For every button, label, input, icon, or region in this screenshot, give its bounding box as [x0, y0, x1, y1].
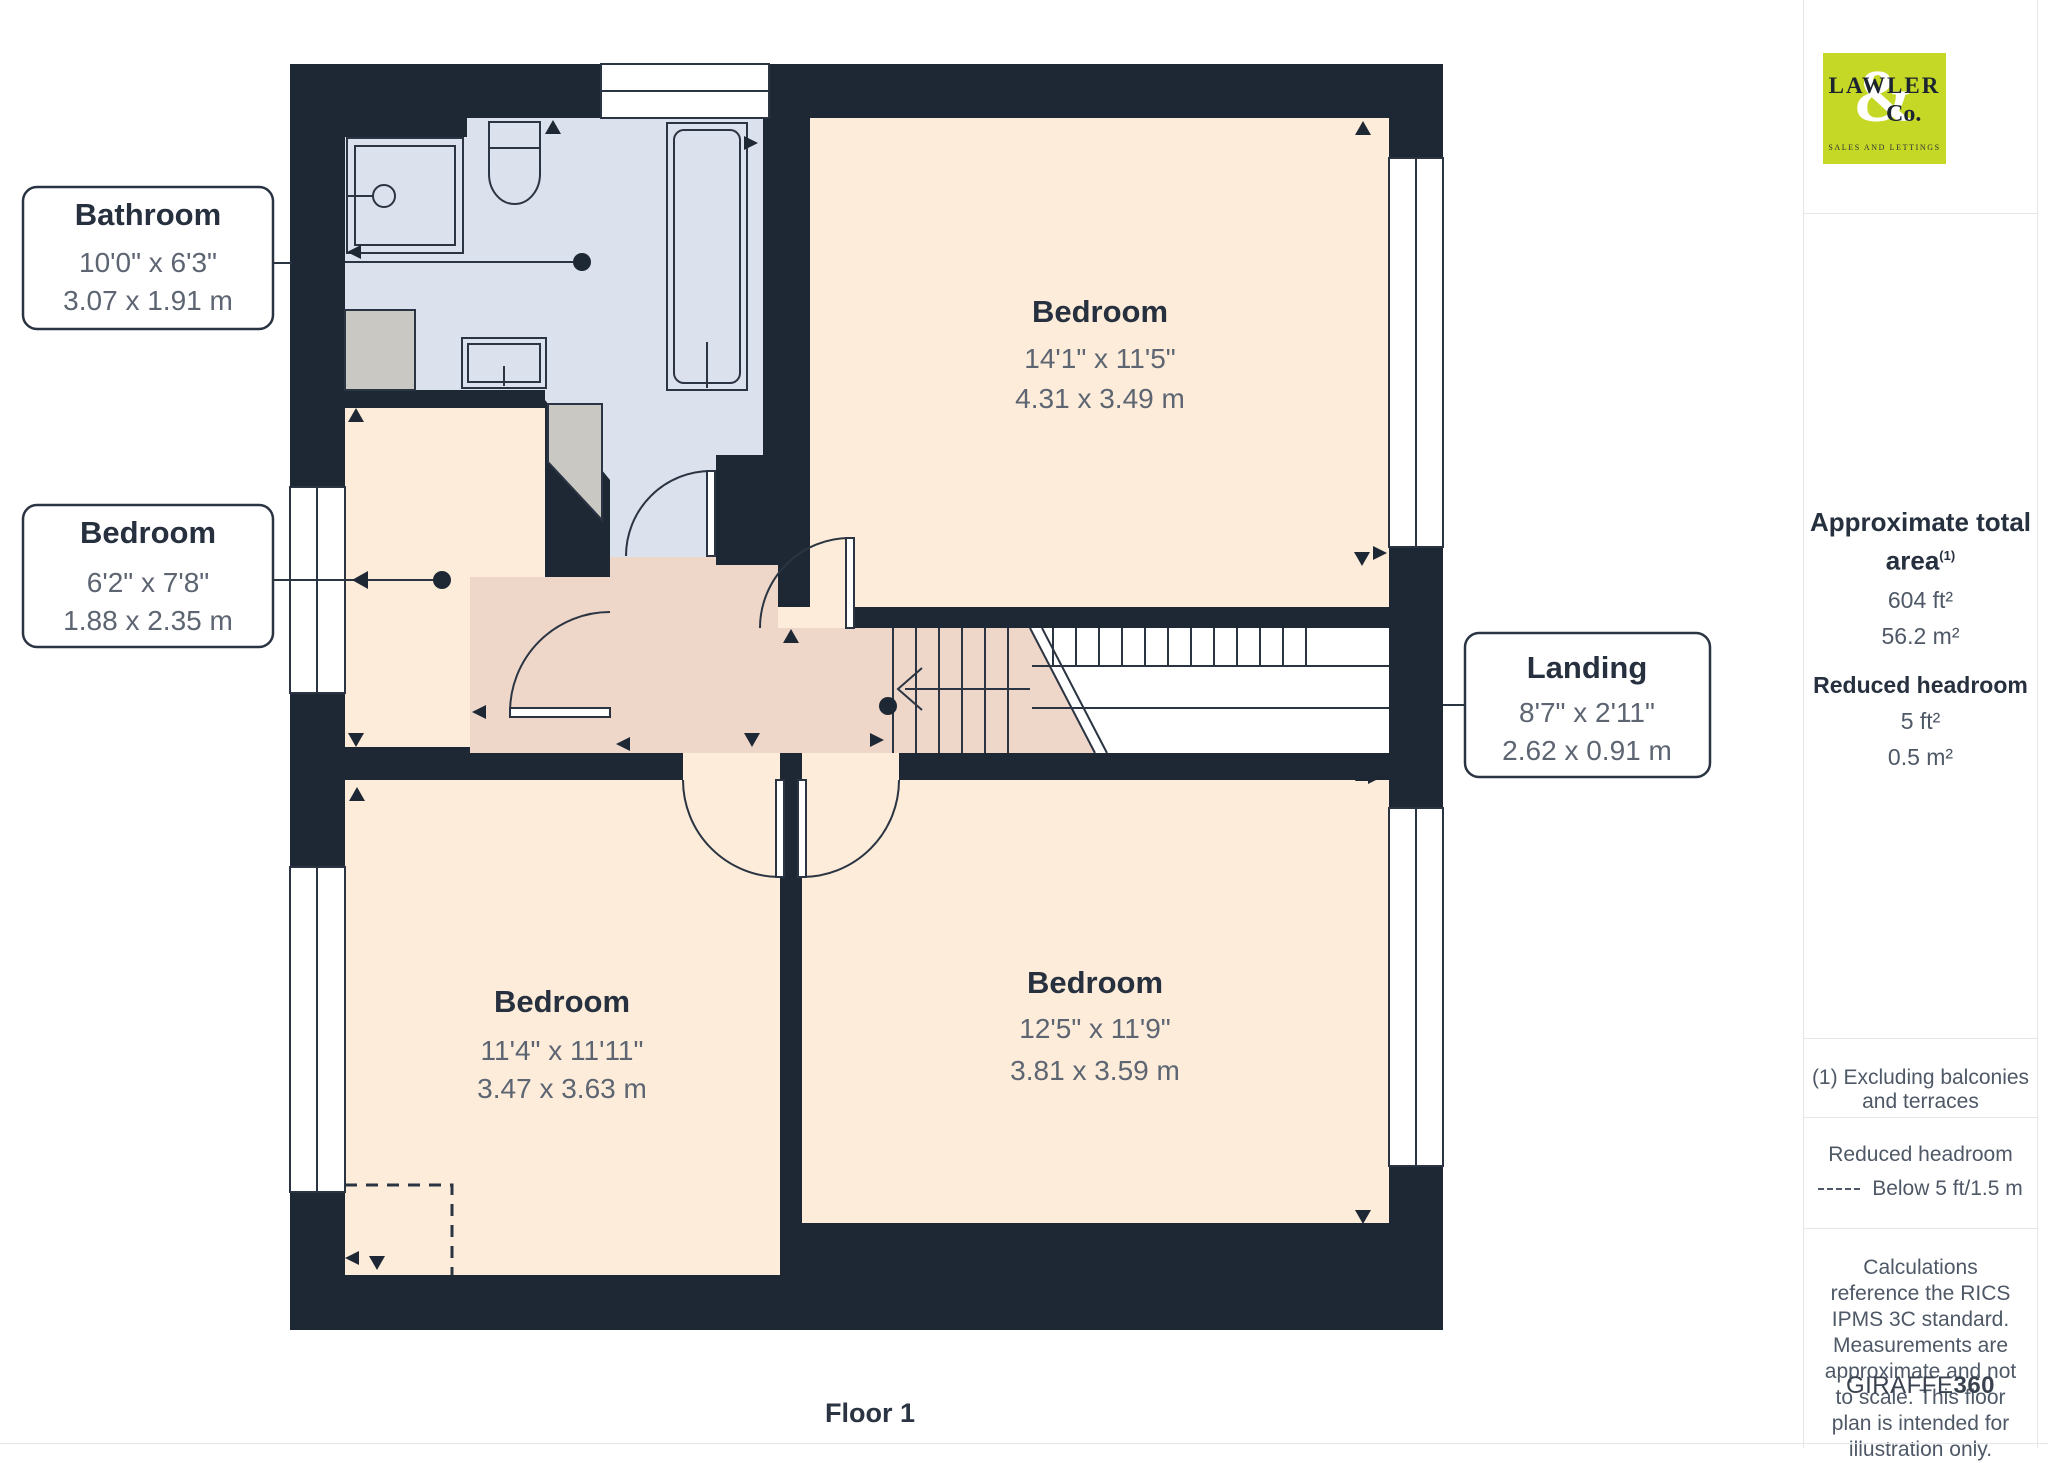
- footnote-marker: (1): [1939, 548, 1955, 563]
- svg-text:8'7" x 2'11": 8'7" x 2'11": [1519, 697, 1655, 728]
- legend-entry: Below 5 ft/1.5 m: [1804, 1177, 2037, 1201]
- svg-text:14'1" x 11'5": 14'1" x 11'5": [1024, 343, 1175, 374]
- window-left-bedroom-small: [290, 487, 345, 693]
- label-bedroom-bottom-left: Bedroom 11'4" x 11'11" 3.47 x 3.63 m: [477, 984, 647, 1104]
- svg-text:11'4" x 11'11": 11'4" x 11'11": [481, 1035, 644, 1066]
- legend: Reduced headroom Below 5 ft/1.5 m: [1804, 1117, 2037, 1201]
- giraffe360-brand: GIRAFFE360: [1804, 1372, 2037, 1400]
- svg-text:1.88 x 2.35 m: 1.88 x 2.35 m: [63, 605, 233, 636]
- callout-landing: Landing 8'7" x 2'11" 2.62 x 0.91 m: [1443, 633, 1710, 777]
- svg-text:6'2" x 7'8": 6'2" x 7'8": [87, 567, 209, 598]
- total-area-m: 56.2 m²: [1804, 623, 2037, 650]
- svg-text:Bedroom: Bedroom: [80, 515, 216, 550]
- svg-text:2.62 x 0.91 m: 2.62 x 0.91 m: [1502, 735, 1672, 766]
- reduced-headroom-ft: 5 ft²: [1804, 708, 2037, 735]
- floor-title: Floor 1: [825, 1398, 915, 1428]
- sidebar-divider: [1804, 213, 2037, 214]
- svg-text:Bedroom: Bedroom: [494, 984, 630, 1019]
- reduced-headroom-heading: Reduced headroom: [1804, 672, 2037, 699]
- svg-text:Landing: Landing: [1527, 650, 1648, 685]
- legend-label: Below 5 ft/1.5 m: [1872, 1177, 2023, 1200]
- window-right-bedroom-top: [1389, 158, 1443, 547]
- stairs-node-dot: [879, 697, 897, 715]
- legend-title: Reduced headroom: [1804, 1143, 2037, 1167]
- area-summary: Approximate total area(1) 604 ft² 56.2 m…: [1804, 505, 2037, 771]
- logo-tagline: SALES AND LETTINGS: [1823, 143, 1946, 152]
- callout-bathroom: Bathroom 10'0" x 6'3" 3.07 x 1.91 m: [23, 187, 292, 329]
- disclaimer-text: Calculations reference the RICS IPMS 3C …: [1820, 1255, 2021, 1463]
- logo-wordmark: LAWLER: [1823, 73, 1946, 99]
- svg-text:10'0" x 6'3": 10'0" x 6'3": [79, 247, 217, 278]
- window-right-bedroom-bottom: [1389, 808, 1443, 1166]
- svg-text:12'5" x 11'9": 12'5" x 11'9": [1019, 1013, 1170, 1044]
- window-left-bedroom-bottom: [290, 867, 345, 1192]
- footnote-text: (1) Excluding balconies and terraces: [1804, 1038, 2037, 1117]
- bedroom-bottom-right-floor: [802, 780, 1389, 1223]
- dashed-line-icon: [1818, 1188, 1860, 1190]
- bedroom-bottom-left-floor: [345, 780, 780, 1275]
- svg-text:Bedroom: Bedroom: [1032, 294, 1168, 329]
- label-bedroom-top: Bedroom 14'1" x 11'5" 4.31 x 3.49 m: [1015, 294, 1185, 414]
- total-area-ft: 604 ft²: [1804, 587, 2037, 614]
- floor-plan: Bedroom 14'1" x 11'5" 4.31 x 3.49 m Bedr…: [0, 0, 2048, 1448]
- svg-text:Bedroom: Bedroom: [1027, 965, 1163, 1000]
- page-bottom-divider: [0, 1443, 2048, 1444]
- window-top: [601, 64, 769, 118]
- logo-co: Co.: [1886, 101, 1921, 128]
- sidebar: & LAWLER Co. SALES AND LETTINGS Approxim…: [1803, 0, 2038, 1448]
- svg-text:3.07 x 1.91 m: 3.07 x 1.91 m: [63, 285, 233, 316]
- scan-dot-bathroom: [573, 253, 591, 271]
- closet-bathroom: [345, 310, 415, 390]
- reduced-headroom-m: 0.5 m²: [1804, 744, 2037, 771]
- svg-text:4.31 x 3.49 m: 4.31 x 3.49 m: [1015, 383, 1185, 414]
- total-area-heading: Approximate total area(1): [1804, 505, 2037, 578]
- svg-text:3.81 x 3.59 m: 3.81 x 3.59 m: [1010, 1055, 1180, 1086]
- scan-dot-bedroom-small: [433, 571, 451, 589]
- brand-logo: & LAWLER Co. SALES AND LETTINGS: [1823, 53, 1946, 164]
- sidebar-divider: [1804, 1228, 2037, 1229]
- svg-text:Bathroom: Bathroom: [75, 197, 221, 232]
- label-bedroom-bottom-right: Bedroom 12'5" x 11'9" 3.81 x 3.59 m: [1010, 965, 1180, 1086]
- svg-text:3.47 x 3.63 m: 3.47 x 3.63 m: [477, 1073, 647, 1104]
